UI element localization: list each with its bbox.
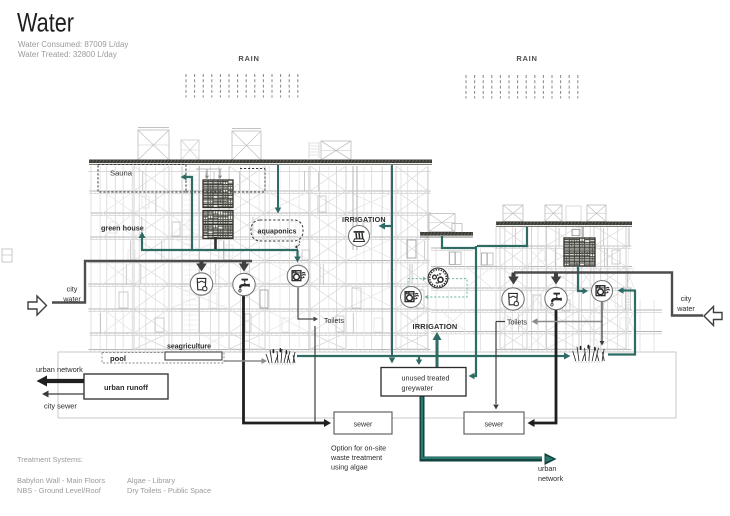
svg-text:RAIN: RAIN [238, 54, 259, 63]
svg-text:Algae - Library: Algae - Library [127, 476, 175, 485]
svg-text:sewer: sewer [354, 422, 373, 429]
svg-text:using algae: using algae [331, 463, 368, 472]
svg-text:NBS - Ground Level/Roof: NBS - Ground Level/Roof [17, 486, 102, 495]
svg-text:green house: green house [101, 224, 144, 233]
svg-text:urban: urban [538, 464, 556, 473]
svg-text:water: water [676, 304, 695, 313]
svg-text:city sewer: city sewer [44, 402, 77, 411]
svg-text:network: network [538, 474, 564, 483]
svg-text:Treatment Systems:: Treatment Systems: [17, 455, 83, 464]
svg-text:IRRIGATION: IRRIGATION [342, 215, 386, 224]
svg-text:aquaponics: aquaponics [258, 229, 297, 236]
svg-text:city: city [67, 285, 78, 294]
svg-text:IRRIGATION: IRRIGATION [413, 322, 458, 331]
svg-text:Toilets: Toilets [324, 318, 344, 325]
svg-text:Sauna: Sauna [110, 169, 133, 178]
svg-text:Babylon Wall - Main Floors: Babylon Wall - Main Floors [17, 476, 105, 485]
svg-text:RAIN: RAIN [516, 54, 537, 63]
svg-text:urban runoff: urban runoff [104, 383, 148, 392]
svg-text:Dry Toilets - Public Space: Dry Toilets - Public Space [127, 486, 211, 495]
svg-text:unused treated: unused treated [402, 374, 450, 383]
svg-text:city: city [681, 294, 692, 303]
svg-text:sewer: sewer [485, 422, 504, 429]
svg-text:Water Consumed: 87009 L/day: Water Consumed: 87009 L/day [18, 40, 128, 49]
svg-text:pool: pool [110, 354, 126, 363]
svg-text:Water Treated: 32800 L/day: Water Treated: 32800 L/day [18, 50, 117, 59]
svg-text:waste treatment: waste treatment [330, 453, 382, 462]
svg-text:greywater: greywater [402, 384, 434, 393]
svg-text:Option for on-site: Option for on-site [331, 444, 386, 453]
svg-text:Water: Water [17, 8, 74, 38]
svg-text:urban network: urban network [36, 365, 83, 374]
svg-text:seagriculture: seagriculture [167, 344, 211, 351]
svg-text:Toilets: Toilets [507, 320, 527, 327]
